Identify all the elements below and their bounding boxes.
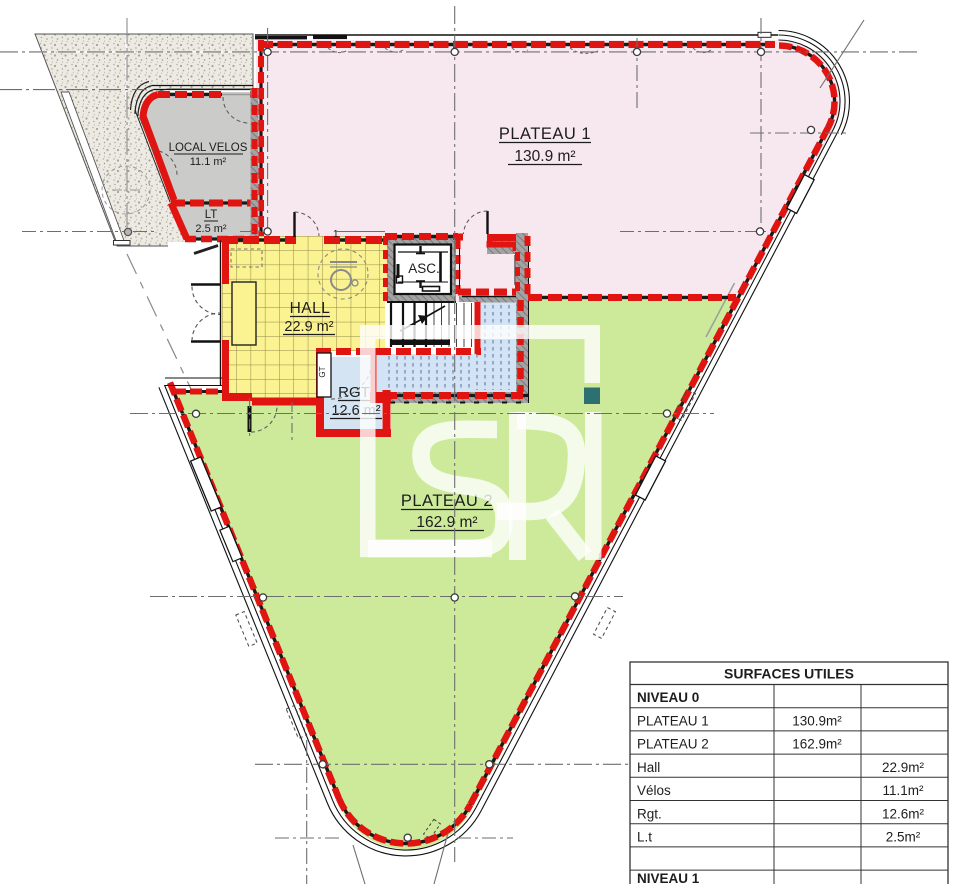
svg-text:11.1m²: 11.1m²: [882, 783, 924, 798]
svg-text:PLATEAU 1: PLATEAU 1: [499, 125, 591, 143]
svg-text:2.5m²: 2.5m²: [886, 830, 921, 845]
svg-text:LOCAL VELOS: LOCAL VELOS: [169, 142, 248, 154]
svg-text:GT: GT: [318, 366, 327, 377]
svg-text:LT: LT: [205, 209, 218, 221]
svg-text:2.5 m²: 2.5 m²: [195, 223, 227, 235]
svg-text:SURFACES UTILES: SURFACES UTILES: [724, 666, 854, 682]
svg-text:HALL: HALL: [290, 300, 331, 317]
svg-text:ASC.: ASC.: [408, 261, 440, 276]
svg-text:NIVEAU 0: NIVEAU 0: [637, 690, 699, 705]
svg-text:PLATEAU 1: PLATEAU 1: [637, 714, 709, 729]
svg-text:L.t: L.t: [637, 830, 652, 845]
svg-text:Hall: Hall: [637, 760, 660, 775]
svg-text:1: 1: [333, 229, 339, 240]
svg-text:Vélos: Vélos: [637, 783, 671, 798]
svg-text:130.9m²: 130.9m²: [792, 714, 842, 729]
svg-text:PLATEAU 2: PLATEAU 2: [637, 737, 709, 752]
svg-text:22.9 m²: 22.9 m²: [284, 319, 333, 335]
svg-text:162.9m²: 162.9m²: [792, 737, 842, 752]
svg-text:NIVEAU 1: NIVEAU 1: [637, 871, 700, 884]
svg-text:22.9m²: 22.9m²: [882, 760, 925, 775]
svg-text:12.6m²: 12.6m²: [882, 806, 925, 821]
svg-text:130.9 m²: 130.9 m²: [514, 148, 575, 165]
svg-text:Rgt.: Rgt.: [637, 806, 662, 821]
svg-text:162.9 m²: 162.9 m²: [416, 514, 477, 531]
svg-text:11.1 m²: 11.1 m²: [190, 156, 227, 168]
